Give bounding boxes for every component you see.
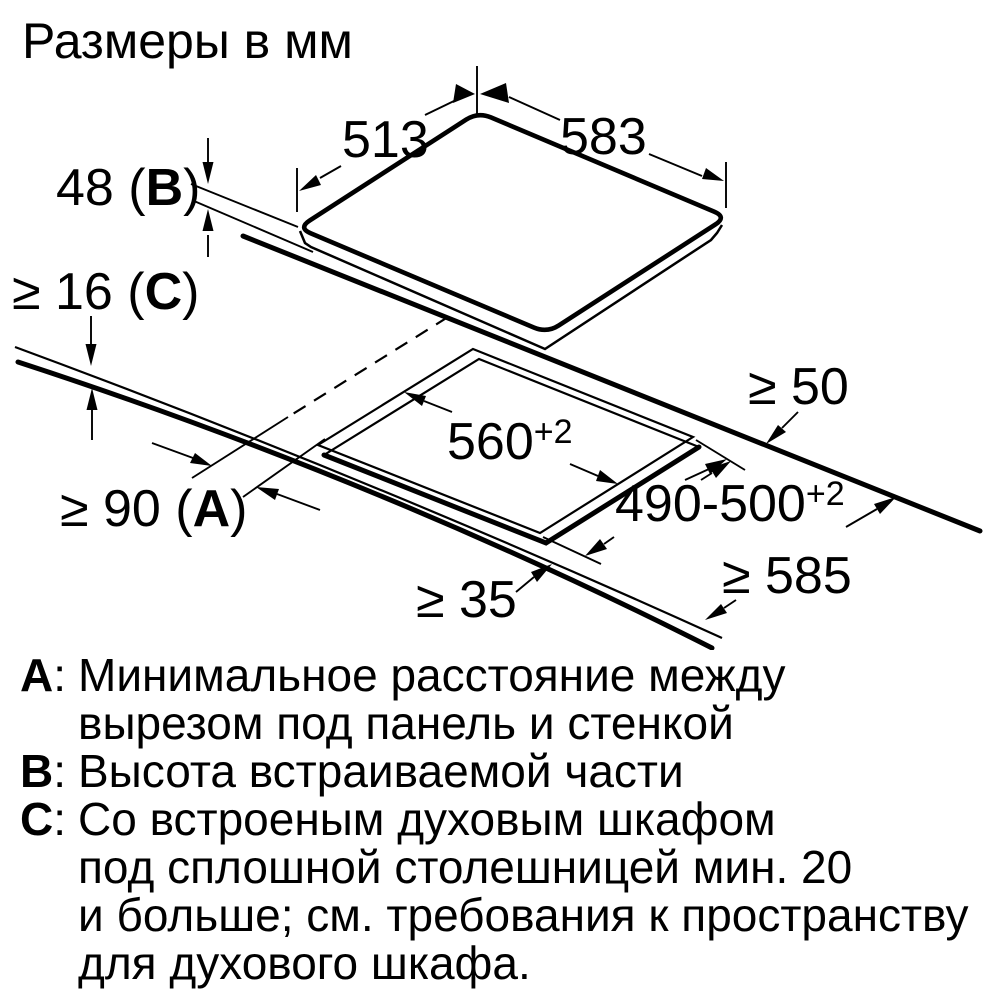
page: Размеры в мм	[0, 0, 1000, 1000]
arrowhead-icon	[86, 344, 97, 366]
legend-text: под сплошной столешницей мин. 20	[78, 843, 852, 891]
wall-reference	[192, 317, 448, 478]
legend: A: Минимальное расстояние между вырезом …	[20, 651, 969, 987]
arrowhead-icon	[87, 388, 98, 410]
dim-label-490-500: 490-500+2	[615, 475, 845, 533]
dim-line	[516, 577, 534, 592]
arrowhead-icon	[585, 539, 607, 556]
dim-line	[320, 166, 341, 178]
legend-letter	[20, 939, 78, 987]
arrowhead-icon	[203, 162, 214, 184]
dim-line	[277, 494, 320, 510]
dim-line	[570, 464, 598, 476]
dim-label-560: 560+2	[447, 413, 573, 471]
legend-letter	[20, 843, 78, 891]
arrowhead-icon	[480, 83, 509, 103]
arrowhead-icon	[203, 209, 214, 231]
dim-label-35: ≥ 35	[416, 571, 517, 629]
dim-line	[425, 101, 454, 115]
dimension-rear-clearance: ≥ 50	[685, 358, 849, 480]
arrowhead-icon	[702, 168, 724, 181]
legend-row-c1: C: Со встроеным духовым шкафом	[20, 795, 969, 843]
arrowhead-icon	[256, 487, 279, 500]
legend-row-a1: A: Минимальное расстояние между	[20, 651, 969, 699]
dim-line	[649, 154, 702, 176]
legend-text: вырезом под панель и стенкой	[78, 699, 734, 747]
legend-text: Высота встраиваемой части	[78, 747, 684, 795]
arrowhead-icon	[299, 175, 321, 191]
legend-letter: A:	[20, 651, 78, 699]
legend-text: Со встроеным духовым шкафом	[78, 795, 776, 843]
panel-skirt-outline	[300, 225, 722, 349]
installation-diagram: 513 583 48 (B) ≥ 16 (C)	[0, 0, 1000, 650]
dim-line	[509, 97, 560, 120]
legend-letter	[20, 891, 78, 939]
legend-text: и больше; см. требования к пространству	[78, 891, 969, 939]
arrowhead-icon	[190, 453, 212, 466]
legend-row-c3: и больше; см. требования к пространству	[20, 891, 969, 939]
legend-letter	[20, 699, 78, 747]
legend-letter: C:	[20, 795, 78, 843]
dim-label-48B: 48 (B)	[56, 159, 201, 217]
dim-label-513: 513	[342, 111, 429, 169]
dim-label-90A: ≥ 90 (A)	[60, 480, 247, 538]
legend-text: для духового шкафа.	[78, 939, 531, 987]
dimension-panel-height: 48 (B)	[56, 138, 313, 257]
dimension-panel-width: 583	[480, 83, 726, 208]
dim-label-50: ≥ 50	[748, 358, 849, 416]
dimension-side-clearance: ≥ 90 (A)	[60, 439, 325, 538]
arrowhead-icon	[874, 497, 896, 514]
legend-row-c4: для духового шкафа.	[20, 939, 969, 987]
legend-text: Минимальное расстояние между	[78, 651, 785, 699]
dimension-front-clearance: ≥ 35	[416, 564, 552, 629]
dim-label-16C: ≥ 16 (C)	[12, 263, 199, 321]
dimension-panel-depth: 513	[297, 66, 477, 212]
dim-label-583: 583	[560, 108, 647, 166]
arrowhead-icon	[705, 604, 727, 620]
arrowhead-icon	[453, 84, 475, 103]
legend-row-a2: вырезом под панель и стенкой	[20, 699, 969, 747]
dim-label-585: ≥ 585	[722, 547, 852, 605]
dimension-cutout-width: 560+2	[404, 392, 618, 484]
legend-row-c2: под сплошной столешницей мин. 20	[20, 843, 969, 891]
dim-line	[846, 509, 877, 527]
dim-line	[152, 443, 193, 458]
legend-row-b: B: Высота встраиваемой части	[20, 747, 969, 795]
legend-letter: B:	[20, 747, 78, 795]
dim-line	[604, 537, 614, 544]
dim-line	[424, 401, 452, 412]
